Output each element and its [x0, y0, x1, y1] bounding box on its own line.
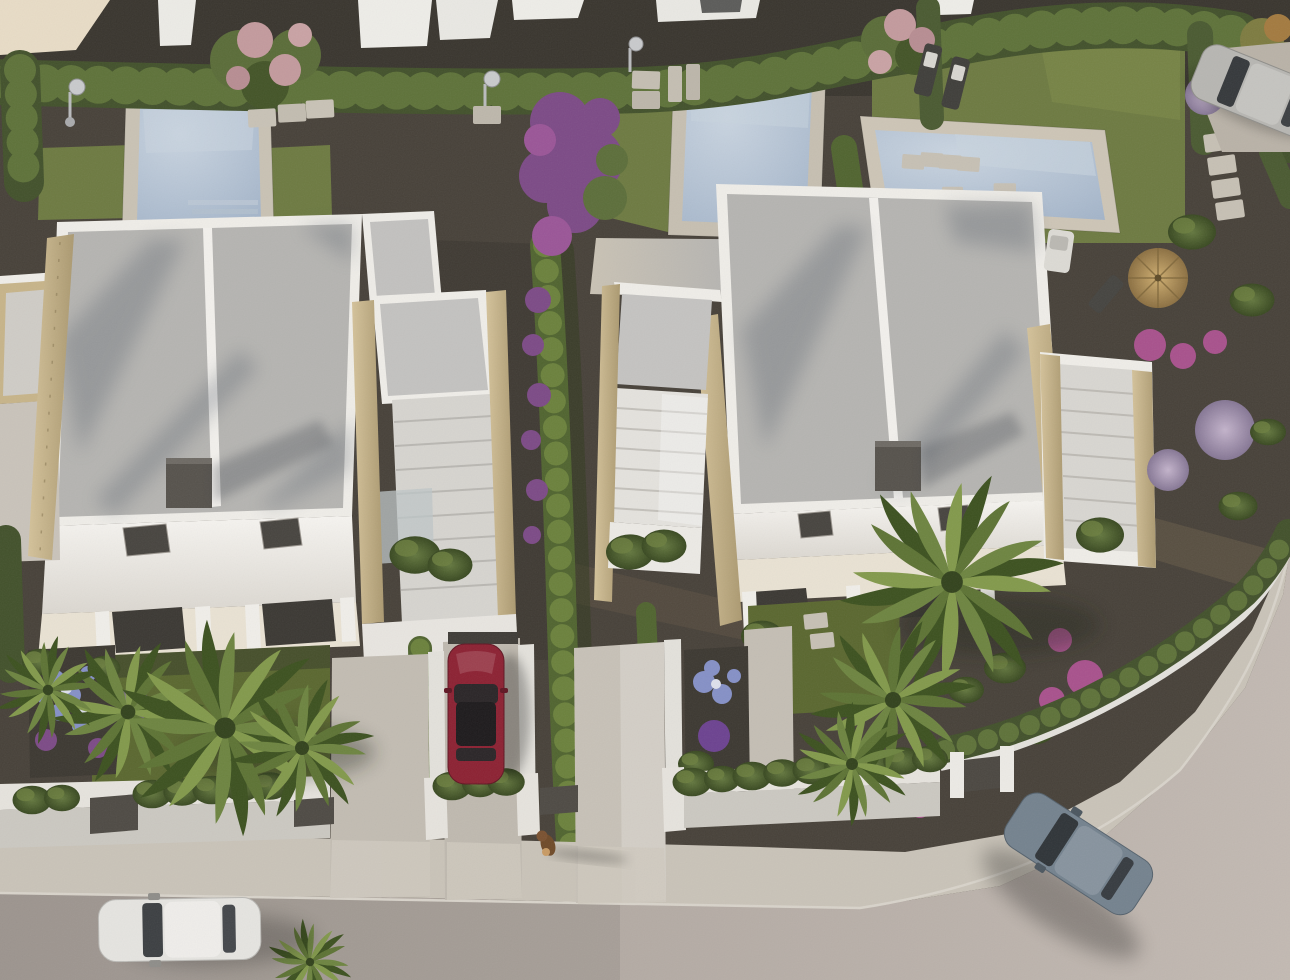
aerial-render-stage	[0, 0, 1290, 980]
aerial-villa-render	[0, 0, 1290, 980]
film-grain-overlay	[0, 0, 1290, 980]
